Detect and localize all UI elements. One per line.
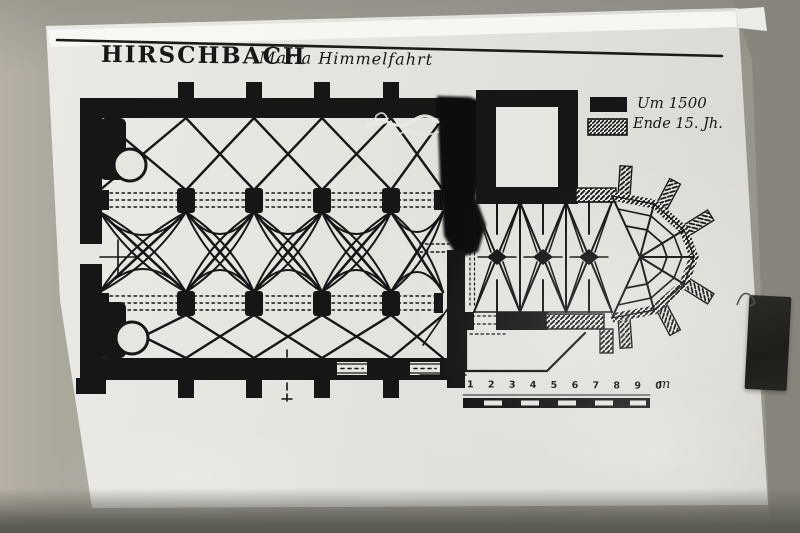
sacristy-annex <box>476 90 578 204</box>
legend-swatch-solid <box>590 97 627 112</box>
church-floor-plan-drawing <box>0 0 800 533</box>
tape-strip <box>745 295 792 391</box>
table-edge-shadow <box>0 488 800 533</box>
plan-subtitle: Maria Himmelfahrt <box>259 48 433 69</box>
choir-plan <box>462 188 616 353</box>
scale-bar-unit: m <box>658 377 670 392</box>
legend-label-ende-15jh: Ende 15. Jh. <box>633 116 723 132</box>
nave-plan <box>76 82 462 404</box>
legend-swatch-hatched <box>588 119 627 135</box>
photo-of-laminated-church-plan: HIRSCHBACH Maria Himmelfahrt Um 1500 End… <box>0 0 800 533</box>
legend-label-um-1500: Um 1500 <box>637 94 707 112</box>
scale-bar-numbers: 1 2 3 4 5 6 7 8 9 0 <box>467 379 662 391</box>
scale-bar <box>463 395 650 408</box>
apse-plan <box>612 166 714 349</box>
legend <box>588 97 627 135</box>
